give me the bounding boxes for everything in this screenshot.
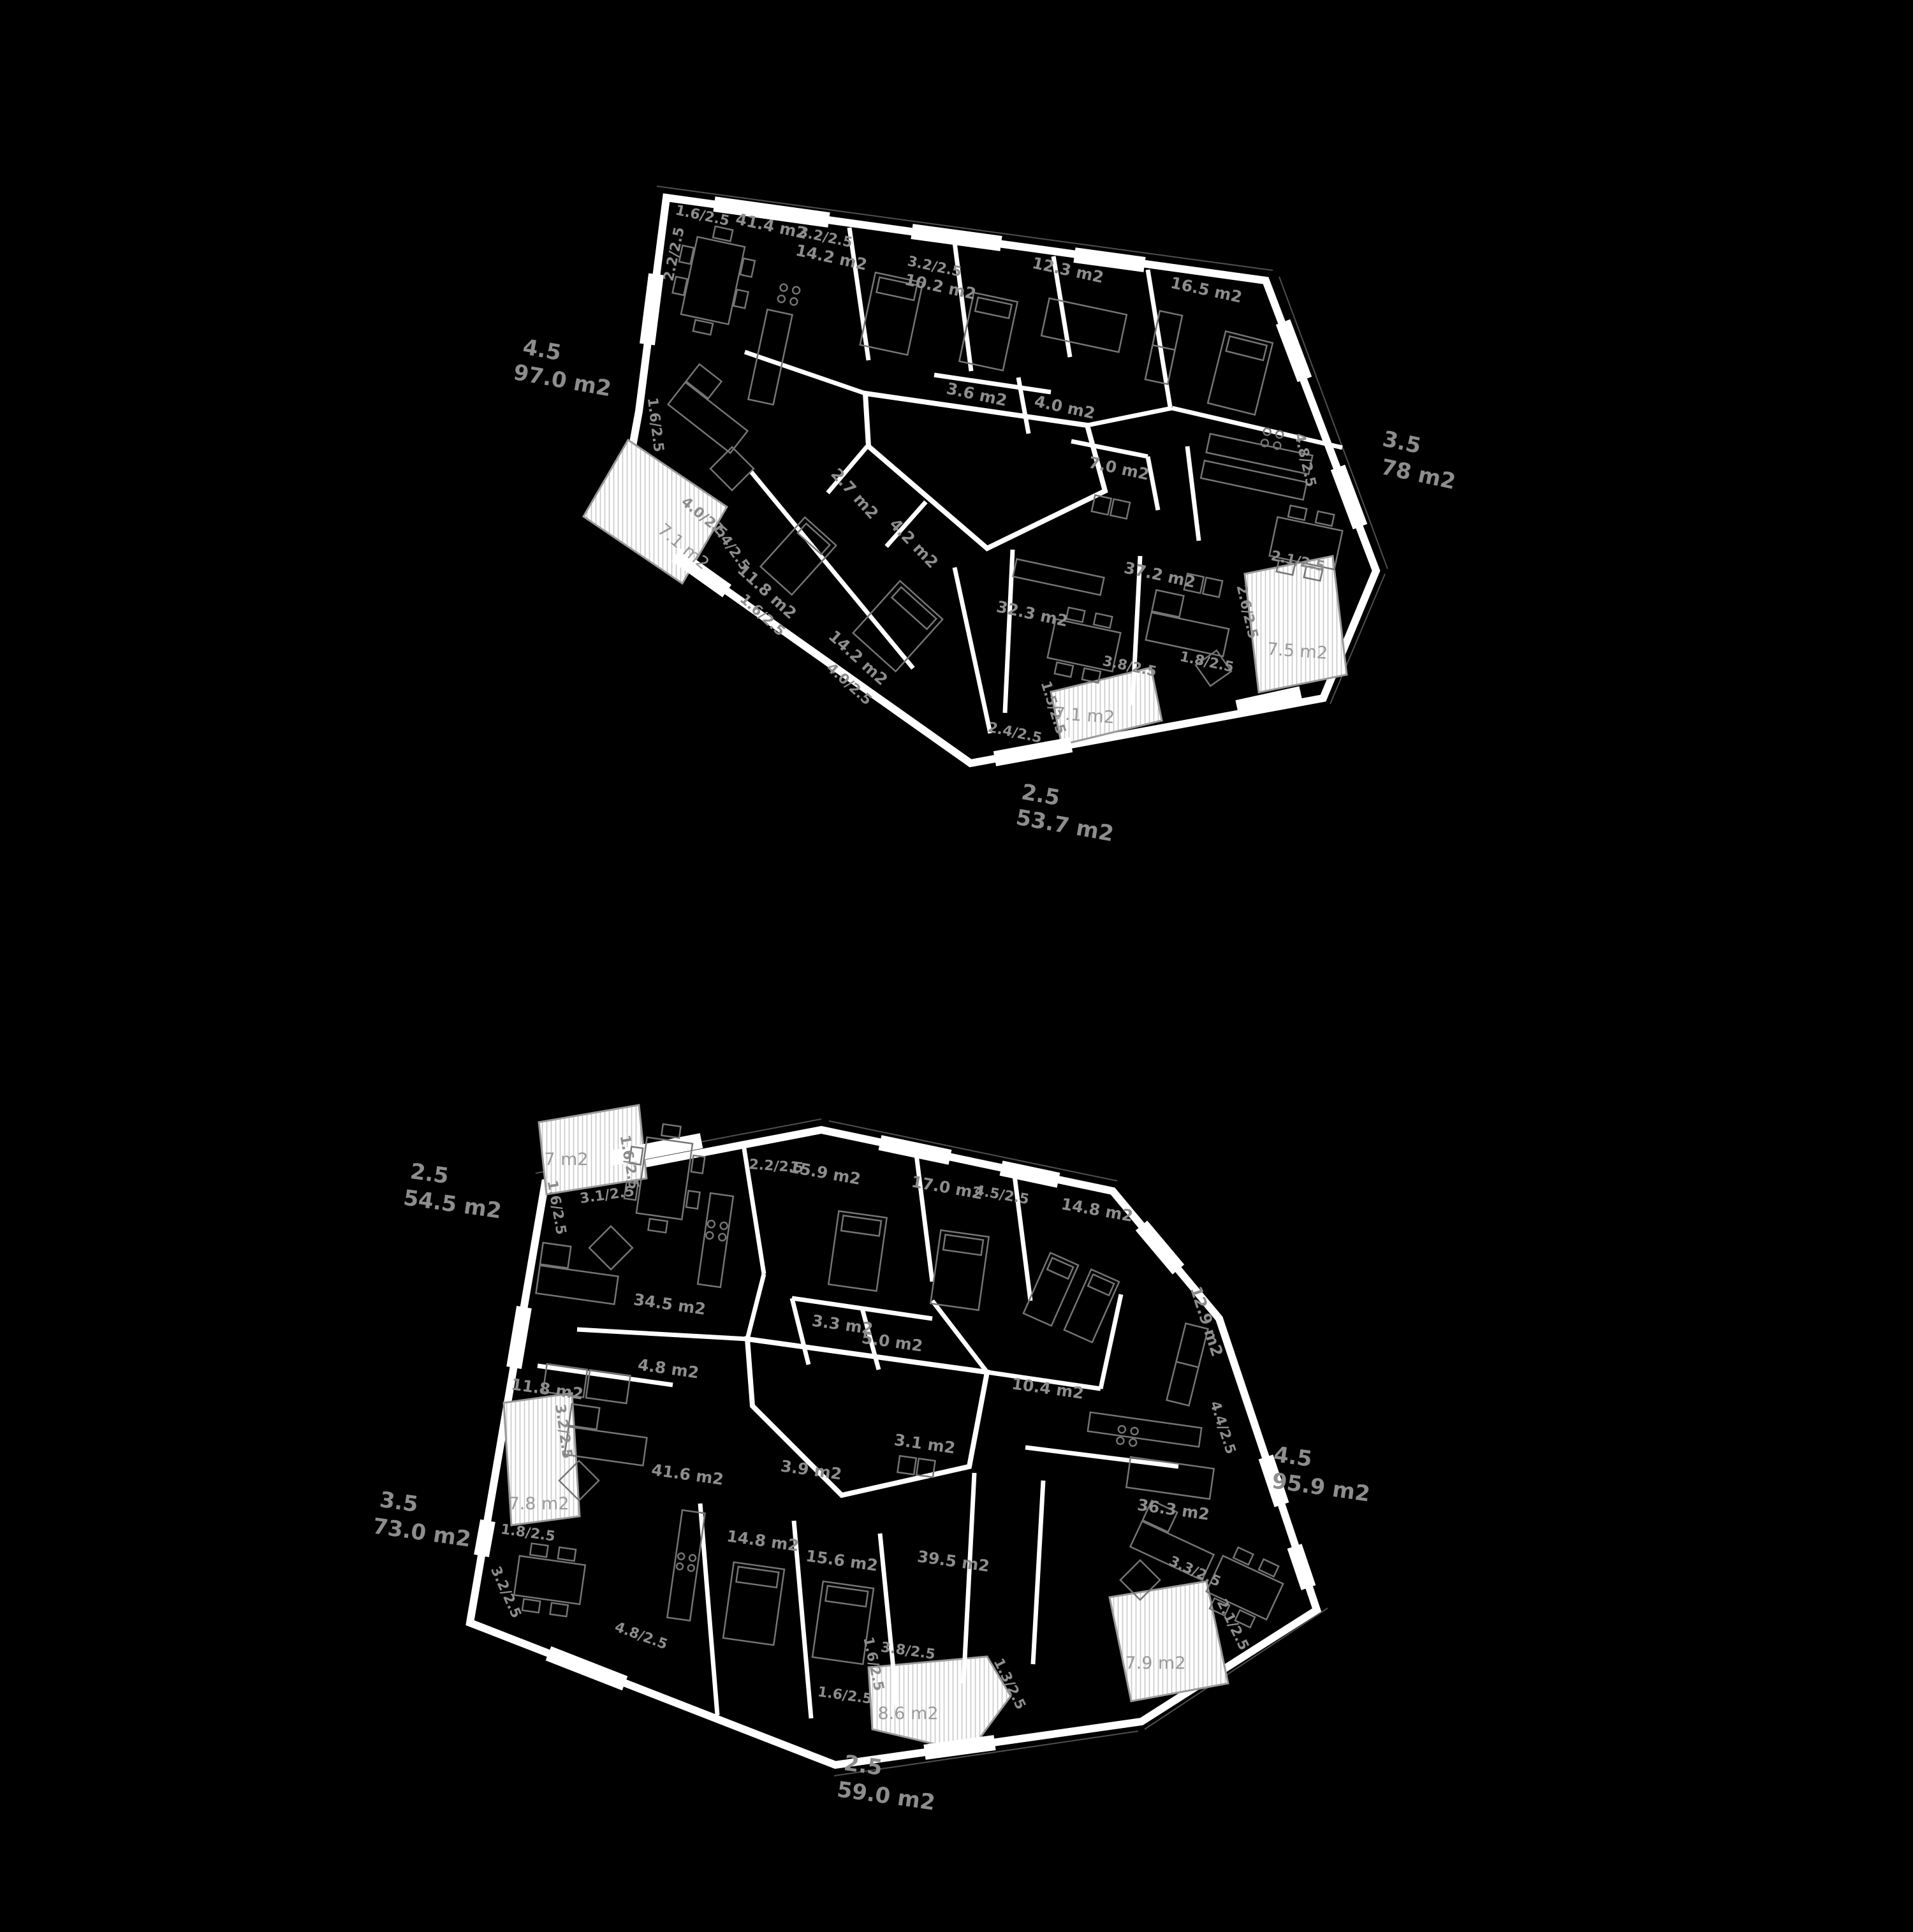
upper-floor-plan: 1.6/2.5 41.4 m2 2.2/2.5 3.2/2.5 14.2 m2 … xyxy=(511,186,1458,847)
apartment-summary-area: 73.0 m2 xyxy=(371,1514,473,1553)
balcony-area-label: 7.9 m2 xyxy=(1125,1653,1185,1673)
apartment-summary-rooms: 2.5 xyxy=(409,1159,450,1189)
balcony-area-label: 7.5 m2 xyxy=(1266,640,1328,664)
balcony-area xyxy=(1245,556,1347,692)
apartment-summary-area: 53.7 m2 xyxy=(1014,805,1115,847)
balcony-area-label: 7 m2 xyxy=(544,1150,588,1169)
floor-plans-canvas: 1.6/2.5 41.4 m2 2.2/2.5 3.2/2.5 14.2 m2 … xyxy=(0,0,1913,1932)
window-marker xyxy=(647,274,656,344)
balcony-area-label: 8.6 m2 xyxy=(877,1704,938,1723)
apartment-summary-rooms: 3.5 xyxy=(378,1487,420,1518)
apartment-summary-rooms: 4.5 xyxy=(1272,1442,1314,1472)
apartment-summary-area: 59.0 m2 xyxy=(835,1777,937,1816)
balcony-area-label: 7.8 m2 xyxy=(508,1494,569,1514)
window-marker xyxy=(481,1521,488,1556)
window-marker xyxy=(925,1743,995,1752)
balcony-area xyxy=(1110,1581,1228,1701)
apartment-summary-rooms: 2.5 xyxy=(842,1750,884,1781)
screenshot-root: 1.6/2.5 41.4 m2 2.2/2.5 3.2/2.5 14.2 m2 … xyxy=(0,0,1913,1932)
balcony-area-label: 7.1 m2 xyxy=(1053,704,1115,728)
apartment-summary-area: 54.5 m2 xyxy=(402,1185,503,1224)
apartment-summary-area: 78 m2 xyxy=(1379,454,1458,495)
apartment-summary-area: 97.0 m2 xyxy=(511,360,613,402)
lower-floor-plan: 7 m2 1.6/2.5 1.6/2.5 3.1/2.5 2.2/2.5 15.… xyxy=(371,1105,1372,1816)
window-marker xyxy=(514,1307,524,1368)
window-marker xyxy=(1074,255,1145,265)
